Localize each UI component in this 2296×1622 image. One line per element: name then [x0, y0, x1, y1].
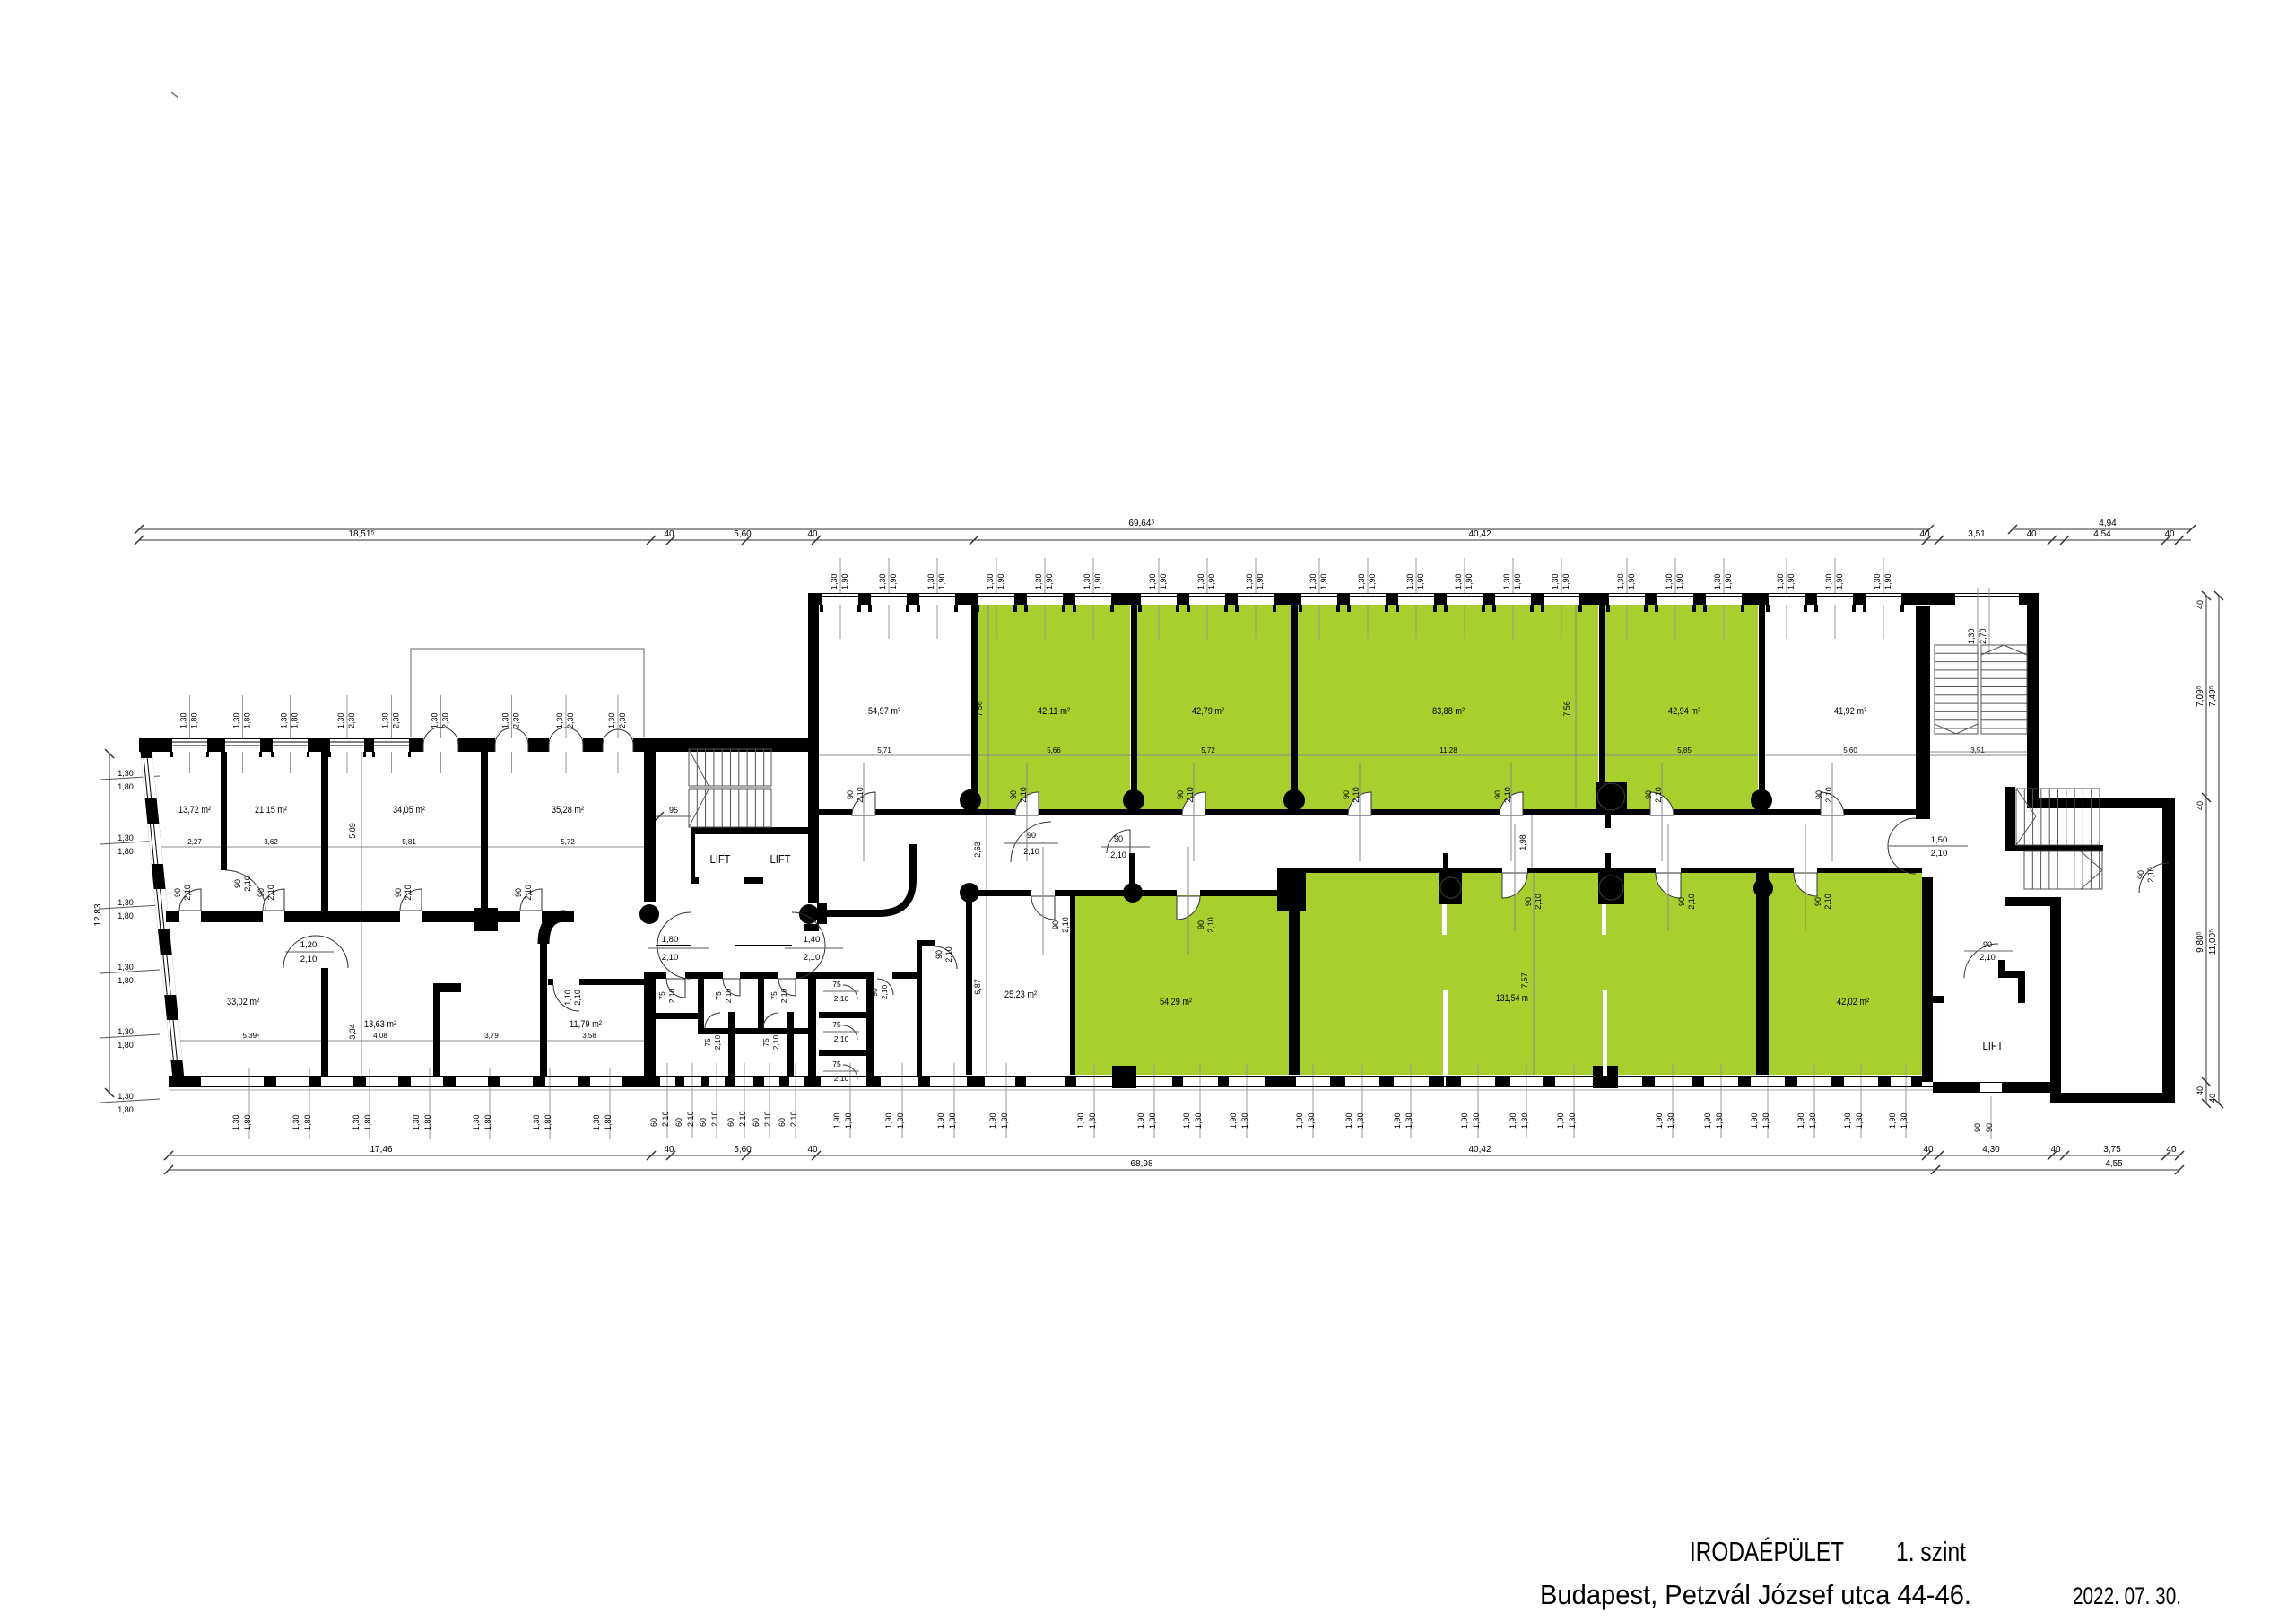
svg-text:21,15 m²: 21,15 m² [255, 805, 287, 815]
svg-text:1,90: 1,90 [1136, 1112, 1145, 1129]
svg-text:90: 90 [1644, 790, 1653, 799]
svg-text:1,30: 1,30 [1000, 1112, 1009, 1129]
svg-text:1,30: 1,30 [1502, 573, 1511, 589]
svg-text:95: 95 [669, 806, 678, 815]
svg-text:2,30: 2,30 [618, 712, 627, 728]
svg-text:90: 90 [1985, 1123, 1994, 1132]
svg-text:1,90: 1,90 [1556, 1112, 1565, 1129]
svg-text:1,80: 1,80 [243, 712, 252, 728]
svg-text:60: 60 [674, 1118, 683, 1127]
svg-text:68,98: 68,98 [1130, 1159, 1152, 1169]
svg-text:1,30: 1,30 [1083, 573, 1091, 589]
svg-text:5,81: 5,81 [402, 838, 416, 846]
svg-text:1,80: 1,80 [117, 782, 134, 791]
svg-text:1,30: 1,30 [280, 712, 289, 728]
svg-text:40: 40 [664, 529, 674, 539]
svg-text:1,80: 1,80 [662, 935, 679, 945]
svg-text:90: 90 [173, 888, 182, 897]
svg-text:1,90: 1,90 [1703, 1112, 1712, 1129]
svg-text:LIFT: LIFT [770, 852, 791, 866]
svg-text:90: 90 [1983, 940, 1992, 949]
svg-text:5,39⁵: 5,39⁵ [243, 1032, 260, 1040]
svg-text:54,97 m²: 54,97 m² [868, 706, 900, 717]
svg-text:35,28 m²: 35,28 m² [552, 805, 584, 815]
svg-text:5,60: 5,60 [734, 529, 752, 539]
svg-text:2,10: 2,10 [880, 984, 889, 999]
svg-text:40: 40 [2196, 1086, 2205, 1095]
svg-text:9,80⁵: 9,80⁵ [2196, 931, 2205, 953]
svg-text:1,30: 1,30 [878, 573, 887, 589]
svg-text:1,30: 1,30 [1855, 1112, 1864, 1129]
svg-text:6,87: 6,87 [973, 979, 982, 995]
svg-text:1,30: 1,30 [844, 1112, 853, 1129]
svg-text:11,28: 11,28 [1439, 746, 1457, 754]
svg-text:1,90: 1,90 [1750, 1112, 1759, 1129]
svg-text:131,54 m: 131,54 m [1496, 993, 1528, 1004]
svg-text:1,30: 1,30 [472, 1114, 481, 1130]
svg-text:2,10: 2,10 [1023, 847, 1039, 856]
svg-text:40: 40 [2026, 529, 2037, 539]
svg-text:90: 90 [846, 790, 855, 799]
svg-text:1,30: 1,30 [179, 712, 188, 728]
svg-text:90: 90 [1342, 790, 1351, 799]
svg-text:11,00⁵: 11,00⁵ [2208, 929, 2218, 955]
svg-text:2,10: 2,10 [1823, 894, 1832, 910]
svg-text:40,42: 40,42 [1468, 529, 1491, 539]
svg-text:1,90: 1,90 [936, 1112, 945, 1129]
svg-text:LIFT: LIFT [1983, 1039, 2004, 1052]
svg-text:1,30: 1,30 [117, 769, 134, 778]
svg-text:75: 75 [714, 991, 723, 1000]
svg-text:90: 90 [514, 888, 523, 897]
svg-text:42,11 m²: 42,11 m² [1038, 706, 1070, 717]
svg-text:2,10: 2,10 [524, 885, 533, 901]
svg-text:1,30: 1,30 [532, 1114, 541, 1130]
svg-text:1,90: 1,90 [1045, 573, 1054, 589]
svg-text:2,10: 2,10 [686, 1111, 695, 1127]
svg-text:1,30: 1,30 [231, 1114, 240, 1130]
svg-text:1,30: 1,30 [896, 1112, 905, 1129]
svg-text:1,90: 1,90 [832, 1112, 841, 1129]
svg-text:1,30: 1,30 [1776, 573, 1785, 589]
svg-text:1,90: 1,90 [1344, 1112, 1353, 1129]
svg-text:60: 60 [649, 1118, 658, 1127]
svg-text:18,51⁵: 18,51⁵ [348, 529, 374, 539]
svg-text:3,51: 3,51 [1970, 746, 1985, 754]
svg-text:2,10: 2,10 [1687, 894, 1696, 910]
svg-text:13,63 m²: 13,63 m² [364, 1019, 396, 1030]
svg-text:90: 90 [1009, 790, 1018, 799]
svg-text:2,10: 2,10 [662, 953, 679, 963]
svg-text:1,30: 1,30 [1088, 1112, 1097, 1129]
svg-text:1,30: 1,30 [830, 573, 839, 589]
svg-text:5,72: 5,72 [561, 838, 575, 846]
svg-text:60: 60 [726, 1118, 735, 1127]
svg-text:1,90: 1,90 [1159, 573, 1168, 589]
svg-text:1,30: 1,30 [430, 712, 439, 728]
svg-text:2,10: 2,10 [1019, 787, 1028, 803]
svg-text:1,90: 1,90 [840, 573, 849, 589]
svg-text:90: 90 [935, 950, 944, 959]
svg-text:1,30: 1,30 [117, 898, 134, 907]
svg-text:2,10: 2,10 [1824, 787, 1833, 803]
svg-text:90: 90 [394, 888, 403, 897]
svg-text:1,90: 1,90 [1460, 1112, 1469, 1129]
svg-text:1,90: 1,90 [884, 1112, 893, 1129]
svg-text:4,54: 4,54 [2093, 529, 2111, 539]
svg-text:69,64⁵: 69,64⁵ [1128, 519, 1154, 528]
svg-text:1,90: 1,90 [1182, 1112, 1191, 1129]
svg-text:60: 60 [699, 1118, 708, 1127]
svg-text:40: 40 [2208, 1094, 2217, 1103]
svg-text:25,23 m²: 25,23 m² [1004, 990, 1037, 1000]
svg-text:90: 90 [870, 988, 879, 997]
svg-text:1,30: 1,30 [336, 712, 345, 728]
svg-text:90: 90 [1493, 790, 1502, 799]
svg-text:1,30: 1,30 [1309, 573, 1318, 589]
svg-text:1,90: 1,90 [1513, 573, 1522, 589]
svg-text:40: 40 [2196, 801, 2205, 810]
svg-text:1,30: 1,30 [1454, 573, 1463, 589]
svg-text:13,72 m²: 13,72 m² [178, 805, 211, 815]
svg-text:2,30: 2,30 [392, 712, 401, 728]
svg-text:40,42: 40,42 [1468, 1145, 1491, 1155]
svg-text:1,80: 1,80 [363, 1114, 372, 1130]
svg-text:1,30: 1,30 [117, 1092, 134, 1101]
svg-text:90: 90 [1051, 920, 1060, 929]
svg-text:2,10: 2,10 [789, 1111, 798, 1127]
svg-text:1,90: 1,90 [1883, 573, 1892, 589]
svg-text:1,30: 1,30 [1307, 1112, 1316, 1129]
svg-text:1,90: 1,90 [1835, 573, 1844, 589]
svg-text:3,34: 3,34 [348, 1024, 357, 1040]
svg-text:1,90: 1,90 [996, 573, 1005, 589]
svg-text:1,30: 1,30 [1824, 573, 1833, 589]
svg-text:90: 90 [1176, 790, 1185, 799]
svg-text:1,90: 1,90 [1627, 573, 1636, 589]
svg-text:1,90: 1,90 [937, 573, 946, 589]
svg-text:2,10: 2,10 [1110, 850, 1126, 859]
svg-text:75: 75 [657, 991, 666, 1000]
svg-text:40: 40 [1923, 1145, 1934, 1155]
svg-text:1,80: 1,80 [303, 1114, 312, 1130]
svg-text:40: 40 [2196, 600, 2205, 609]
svg-text:1,30: 1,30 [381, 712, 390, 728]
svg-text:2,10: 2,10 [1654, 787, 1663, 803]
svg-text:90: 90 [1027, 831, 1036, 840]
svg-text:1,10: 1,10 [563, 990, 572, 1006]
svg-text:1,30: 1,30 [291, 1114, 300, 1130]
svg-text:60: 60 [752, 1118, 761, 1127]
svg-text:2,10: 2,10 [856, 787, 865, 803]
svg-text:1,30: 1,30 [232, 712, 241, 728]
svg-text:1,80: 1,80 [117, 847, 134, 856]
svg-text:83,88 m²: 83,88 m² [1432, 706, 1465, 717]
svg-text:2,10: 2,10 [724, 988, 733, 1003]
svg-text:1,40: 1,40 [804, 935, 821, 945]
svg-text:2,10: 2,10 [266, 885, 275, 901]
svg-text:1,50: 1,50 [1931, 835, 1948, 845]
svg-text:12,83: 12,83 [93, 903, 103, 926]
svg-text:1,90: 1,90 [988, 1112, 997, 1129]
svg-text:90: 90 [1196, 920, 1205, 929]
svg-text:1,30: 1,30 [1405, 1112, 1413, 1129]
svg-text:40: 40 [807, 1145, 818, 1155]
svg-text:2,30: 2,30 [566, 712, 575, 728]
svg-text:2,10: 2,10 [779, 988, 788, 1003]
svg-text:1,80: 1,80 [544, 1114, 552, 1130]
svg-text:2,10: 2,10 [2146, 867, 2155, 883]
svg-text:2,63: 2,63 [973, 842, 982, 858]
svg-text:1,30: 1,30 [1616, 573, 1625, 589]
svg-text:3,51: 3,51 [1968, 529, 1986, 539]
svg-text:1,90: 1,90 [1319, 573, 1328, 589]
svg-text:1,90: 1,90 [1655, 1112, 1664, 1129]
svg-text:7,09⁵: 7,09⁵ [2196, 685, 2205, 707]
svg-text:2,10: 2,10 [300, 955, 317, 964]
svg-text:40: 40 [1919, 529, 1930, 539]
svg-text:1,80: 1,80 [190, 712, 199, 728]
svg-text:1,30: 1,30 [117, 833, 134, 842]
svg-text:4,30: 4,30 [1982, 1145, 2000, 1155]
svg-text:5,60: 5,60 [1843, 746, 1857, 754]
svg-text:1,30: 1,30 [1472, 1112, 1481, 1129]
svg-text:1,80: 1,80 [291, 712, 300, 728]
svg-text:2,10: 2,10 [804, 953, 821, 963]
svg-text:1,20: 1,20 [300, 940, 317, 950]
svg-text:1,30: 1,30 [1551, 573, 1560, 589]
svg-text:1,30: 1,30 [1713, 573, 1722, 589]
svg-text:1,80: 1,80 [423, 1114, 432, 1130]
svg-text:90: 90 [1524, 897, 1533, 906]
svg-text:3,62: 3,62 [264, 838, 278, 846]
svg-text:1,90: 1,90 [1843, 1112, 1852, 1129]
svg-text:1,30: 1,30 [986, 573, 995, 589]
svg-text:4,08: 4,08 [373, 1032, 387, 1040]
svg-text:1,90: 1,90 [889, 573, 898, 589]
svg-text:90: 90 [1813, 897, 1822, 906]
svg-text:2,10: 2,10 [710, 1111, 719, 1127]
svg-text:1,30: 1,30 [1245, 573, 1254, 589]
svg-text:7,57: 7,57 [1520, 972, 1529, 989]
svg-text:33,02 m²: 33,02 m² [227, 997, 259, 1007]
svg-text:42,02 m²: 42,02 m² [1837, 997, 1869, 1007]
svg-text:40: 40 [664, 1145, 674, 1155]
svg-text:90: 90 [1114, 834, 1123, 843]
svg-text:2,27: 2,27 [187, 838, 202, 846]
svg-text:1,30: 1,30 [117, 1027, 134, 1036]
svg-text:1,30: 1,30 [1196, 573, 1205, 589]
svg-text:2,10: 2,10 [763, 1111, 772, 1127]
svg-text:7,56: 7,56 [1562, 701, 1571, 717]
svg-text:1,30: 1,30 [1568, 1112, 1577, 1129]
svg-text:1,90: 1,90 [1509, 1112, 1518, 1129]
svg-text:2,10: 2,10 [738, 1111, 747, 1127]
svg-text:1,90: 1,90 [1229, 1112, 1238, 1129]
svg-text:1,90: 1,90 [1724, 573, 1733, 589]
svg-text:1,30: 1,30 [501, 712, 510, 728]
svg-text:75: 75 [761, 1038, 770, 1047]
svg-text:1,90: 1,90 [1295, 1112, 1304, 1129]
svg-text:1,80: 1,80 [243, 1114, 252, 1130]
svg-text:1,80: 1,80 [117, 911, 134, 920]
svg-text:1,30: 1,30 [926, 573, 935, 589]
svg-text:11,79 m²: 11,79 m² [570, 1019, 602, 1030]
svg-text:90: 90 [1677, 897, 1686, 906]
svg-text:1,30: 1,30 [948, 1112, 957, 1129]
svg-text:2022. 07. 30.: 2022. 07. 30. [2073, 1583, 2181, 1609]
svg-text:1,30: 1,30 [1761, 1112, 1770, 1129]
svg-text:2,10: 2,10 [243, 876, 252, 892]
svg-text:90: 90 [1973, 1123, 1982, 1132]
svg-text:90: 90 [2136, 870, 2145, 879]
svg-text:60: 60 [778, 1118, 787, 1127]
svg-text:1,30: 1,30 [117, 963, 134, 972]
svg-text:2,70: 2,70 [1979, 628, 1987, 644]
svg-text:1,80: 1,80 [483, 1114, 492, 1130]
svg-text:1,30: 1,30 [1715, 1112, 1724, 1129]
svg-text:90: 90 [233, 879, 242, 888]
svg-text:Budapest, Petzvál József utca: Budapest, Petzvál József utca 44-46. [1540, 1579, 1971, 1610]
svg-text:1,90: 1,90 [1393, 1112, 1402, 1129]
svg-text:5,72: 5,72 [1201, 746, 1215, 754]
svg-text:1,30: 1,30 [1808, 1112, 1817, 1129]
svg-text:1,30: 1,30 [412, 1114, 421, 1130]
svg-text:7,49⁵: 7,49⁵ [2208, 685, 2218, 707]
svg-text:2,10: 2,10 [1931, 849, 1948, 859]
svg-text:1,30: 1,30 [352, 1114, 361, 1130]
svg-text:34,05 m²: 34,05 m² [393, 805, 425, 815]
svg-text:2,30: 2,30 [512, 712, 521, 728]
svg-text:1,90: 1,90 [1675, 573, 1684, 589]
svg-text:1,90: 1,90 [1256, 573, 1265, 589]
svg-text:75: 75 [832, 980, 841, 989]
svg-text:2,10: 2,10 [573, 990, 582, 1006]
svg-text:1,30: 1,30 [1194, 1112, 1203, 1129]
svg-text:LIFT: LIFT [710, 852, 731, 866]
svg-text:1,80: 1,80 [604, 1114, 613, 1130]
svg-text:75: 75 [832, 1020, 841, 1029]
svg-text:1,30: 1,30 [592, 1114, 601, 1130]
svg-text:1,90: 1,90 [1416, 573, 1425, 589]
svg-text:1,90: 1,90 [1368, 573, 1377, 589]
svg-text:2,10: 2,10 [1979, 953, 1996, 962]
svg-text:2,10: 2,10 [183, 885, 192, 901]
svg-text:42,79 m²: 42,79 m² [1192, 706, 1224, 717]
svg-text:2,10: 2,10 [1186, 787, 1195, 803]
svg-text:1,80: 1,80 [117, 1105, 134, 1114]
svg-text:1,90: 1,90 [1076, 1112, 1085, 1129]
svg-text:5,71: 5,71 [877, 746, 891, 754]
svg-text:1,80: 1,80 [117, 976, 134, 985]
svg-text:1,30: 1,30 [1356, 1112, 1365, 1129]
svg-text:2,10: 2,10 [834, 1034, 849, 1043]
svg-text:2,10: 2,10 [661, 1111, 670, 1127]
svg-text:2,10: 2,10 [1352, 787, 1361, 803]
svg-text:1,30: 1,30 [1148, 1112, 1157, 1129]
svg-text:3,79: 3,79 [484, 1032, 499, 1040]
svg-text:75: 75 [832, 1060, 841, 1068]
svg-text:1,30: 1,30 [1405, 573, 1414, 589]
svg-text:42,94 m²: 42,94 m² [1668, 706, 1700, 717]
svg-text:2,10: 2,10 [404, 885, 413, 901]
svg-text:2,10: 2,10 [834, 1074, 849, 1083]
svg-text:40: 40 [807, 529, 818, 539]
svg-text:2,10: 2,10 [713, 1034, 722, 1050]
svg-text:2,10: 2,10 [771, 1034, 780, 1050]
svg-text:5,66: 5,66 [1047, 746, 1061, 754]
svg-text:1,30: 1,30 [1240, 1112, 1249, 1129]
svg-text:1,80: 1,80 [117, 1041, 134, 1050]
svg-text:90: 90 [1814, 790, 1823, 799]
svg-text:3,75: 3,75 [2103, 1145, 2121, 1155]
svg-text:17,46: 17,46 [370, 1145, 392, 1155]
svg-text:2,10: 2,10 [1061, 917, 1070, 933]
svg-text:40: 40 [2166, 1145, 2177, 1155]
svg-text:1,30: 1,30 [1873, 573, 1882, 589]
svg-text:1. szint: 1. szint [1896, 1536, 1966, 1567]
svg-text:5,60: 5,60 [734, 1145, 752, 1155]
svg-text:1,90: 1,90 [1093, 573, 1102, 589]
svg-text:1,90: 1,90 [1796, 1112, 1805, 1129]
svg-text:75: 75 [770, 991, 778, 1000]
svg-text:1,90: 1,90 [1787, 573, 1796, 589]
svg-text:4,55: 4,55 [2105, 1159, 2123, 1169]
svg-text:2,10: 2,10 [834, 994, 849, 1003]
svg-text:1,98: 1,98 [1518, 834, 1527, 850]
svg-text:3,58: 3,58 [582, 1032, 596, 1040]
svg-text:40: 40 [2164, 529, 2175, 539]
svg-text:1,90: 1,90 [1888, 1112, 1897, 1129]
svg-text:1,90: 1,90 [1207, 573, 1216, 589]
svg-text:1,30: 1,30 [607, 712, 616, 728]
svg-text:1,30: 1,30 [1967, 628, 1976, 644]
svg-text:54,29 m²: 54,29 m² [1160, 997, 1192, 1007]
svg-text:5,85: 5,85 [1677, 746, 1692, 754]
svg-text:1,90: 1,90 [1465, 573, 1474, 589]
svg-text:2,10: 2,10 [1534, 894, 1543, 910]
svg-text:2,30: 2,30 [441, 712, 450, 728]
svg-text:1,30: 1,30 [1900, 1112, 1909, 1129]
svg-text:2,10: 2,10 [944, 946, 953, 963]
svg-text:41,92 m²: 41,92 m² [1834, 706, 1866, 717]
svg-text:1,30: 1,30 [1520, 1112, 1529, 1129]
svg-text:1,30: 1,30 [1148, 573, 1157, 589]
svg-text:75: 75 [703, 1038, 712, 1047]
svg-text:1,30: 1,30 [1666, 1112, 1675, 1129]
svg-text:1,90: 1,90 [1561, 573, 1570, 589]
svg-text:1,30: 1,30 [1034, 573, 1043, 589]
svg-text:1,30: 1,30 [1357, 573, 1366, 589]
svg-text:4,94: 4,94 [2099, 519, 2117, 528]
svg-text:1,30: 1,30 [1665, 573, 1674, 589]
svg-text:5,89: 5,89 [348, 823, 357, 839]
svg-text:2,10: 2,10 [667, 988, 676, 1003]
svg-text:IRODAÉPÜLET: IRODAÉPÜLET [1690, 1536, 1844, 1567]
svg-text:1,30: 1,30 [555, 712, 564, 728]
svg-text:2,10: 2,10 [1503, 787, 1512, 803]
svg-text:2,30: 2,30 [347, 712, 356, 728]
svg-text:2,10: 2,10 [1206, 917, 1215, 933]
svg-text:40: 40 [2050, 1145, 2061, 1155]
